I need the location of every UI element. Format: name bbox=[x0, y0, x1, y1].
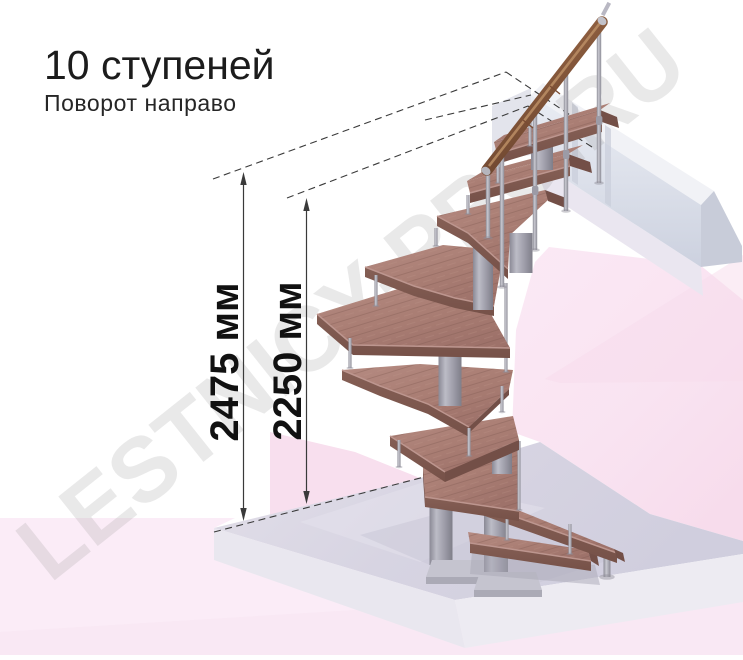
svg-text:2475 мм: 2475 мм bbox=[203, 282, 247, 441]
svg-text:2250 мм: 2250 мм bbox=[266, 281, 310, 440]
svg-text:Поворот направо: Поворот направо bbox=[44, 90, 237, 116]
svg-text:10 ступеней: 10 ступеней bbox=[44, 42, 275, 88]
